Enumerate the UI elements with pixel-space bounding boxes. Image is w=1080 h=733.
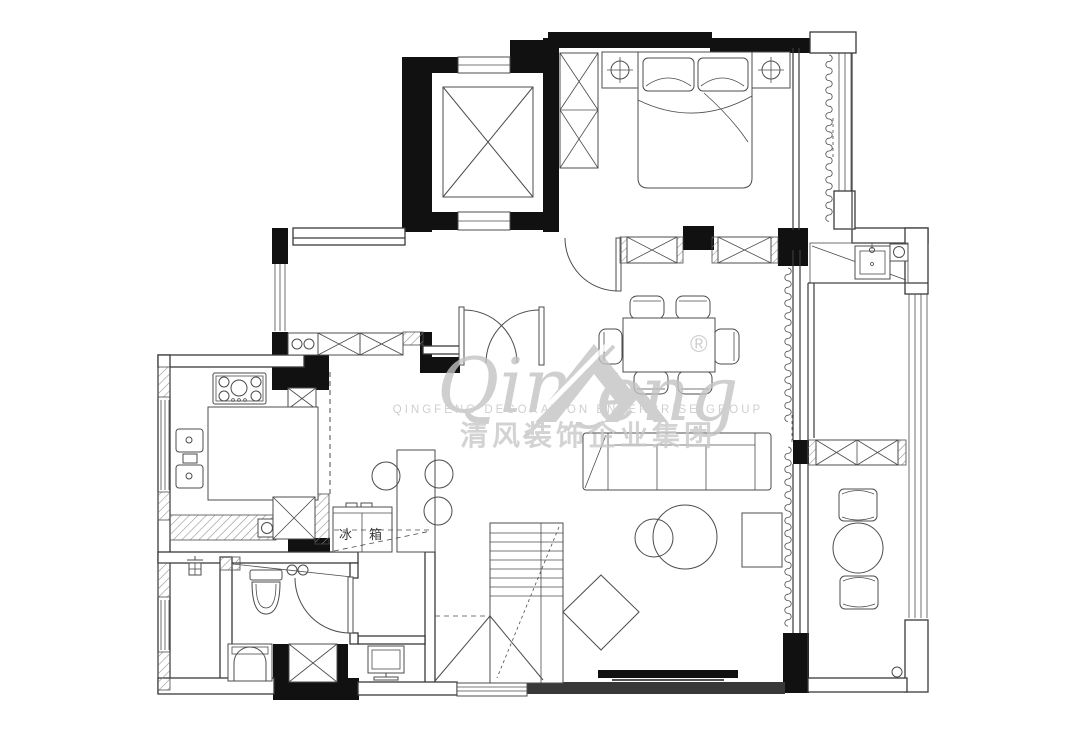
double-bed-icon [638,52,752,188]
elevator-shaft-icon [443,87,533,197]
bottom-steps-icon [457,683,527,696]
balcony-cabinet-icon [808,440,906,465]
watermark-title-cn: 清风装饰企业集团 [460,419,716,452]
kitchen-island-icon [208,407,318,500]
nightstand-icon [752,52,790,88]
refrigerator-icon: 冰箱 [333,503,399,552]
balcony-chair-icon [840,576,878,609]
wardrobe-icon [560,53,598,168]
laundry-sink-icon [855,243,890,279]
dining-chair-icon [630,296,664,319]
fridge-label: 冰箱 [339,527,399,543]
gas-stove-icon [213,373,266,404]
entry-cabinet-icon [288,333,403,355]
nook-table-icon [397,450,435,552]
watermark-subtitle: QINGFENG DECORATION ENTERPRISE GROUP [393,404,763,416]
kitchen-column-icon [273,497,315,539]
dining-chair-icon [676,296,710,319]
watermark-registered: ® [690,331,708,358]
bath-column-icon [289,644,337,682]
side-table-icon [742,513,782,567]
nightstand-icon [602,52,638,88]
washing-machine-icon [228,644,272,681]
floor-plan-page: 冰箱 [0,0,1080,733]
floor-plan-svg: 冰箱 [0,0,1080,733]
kitchen-counter-icon [170,515,276,540]
balcony-chair-icon [839,489,877,521]
